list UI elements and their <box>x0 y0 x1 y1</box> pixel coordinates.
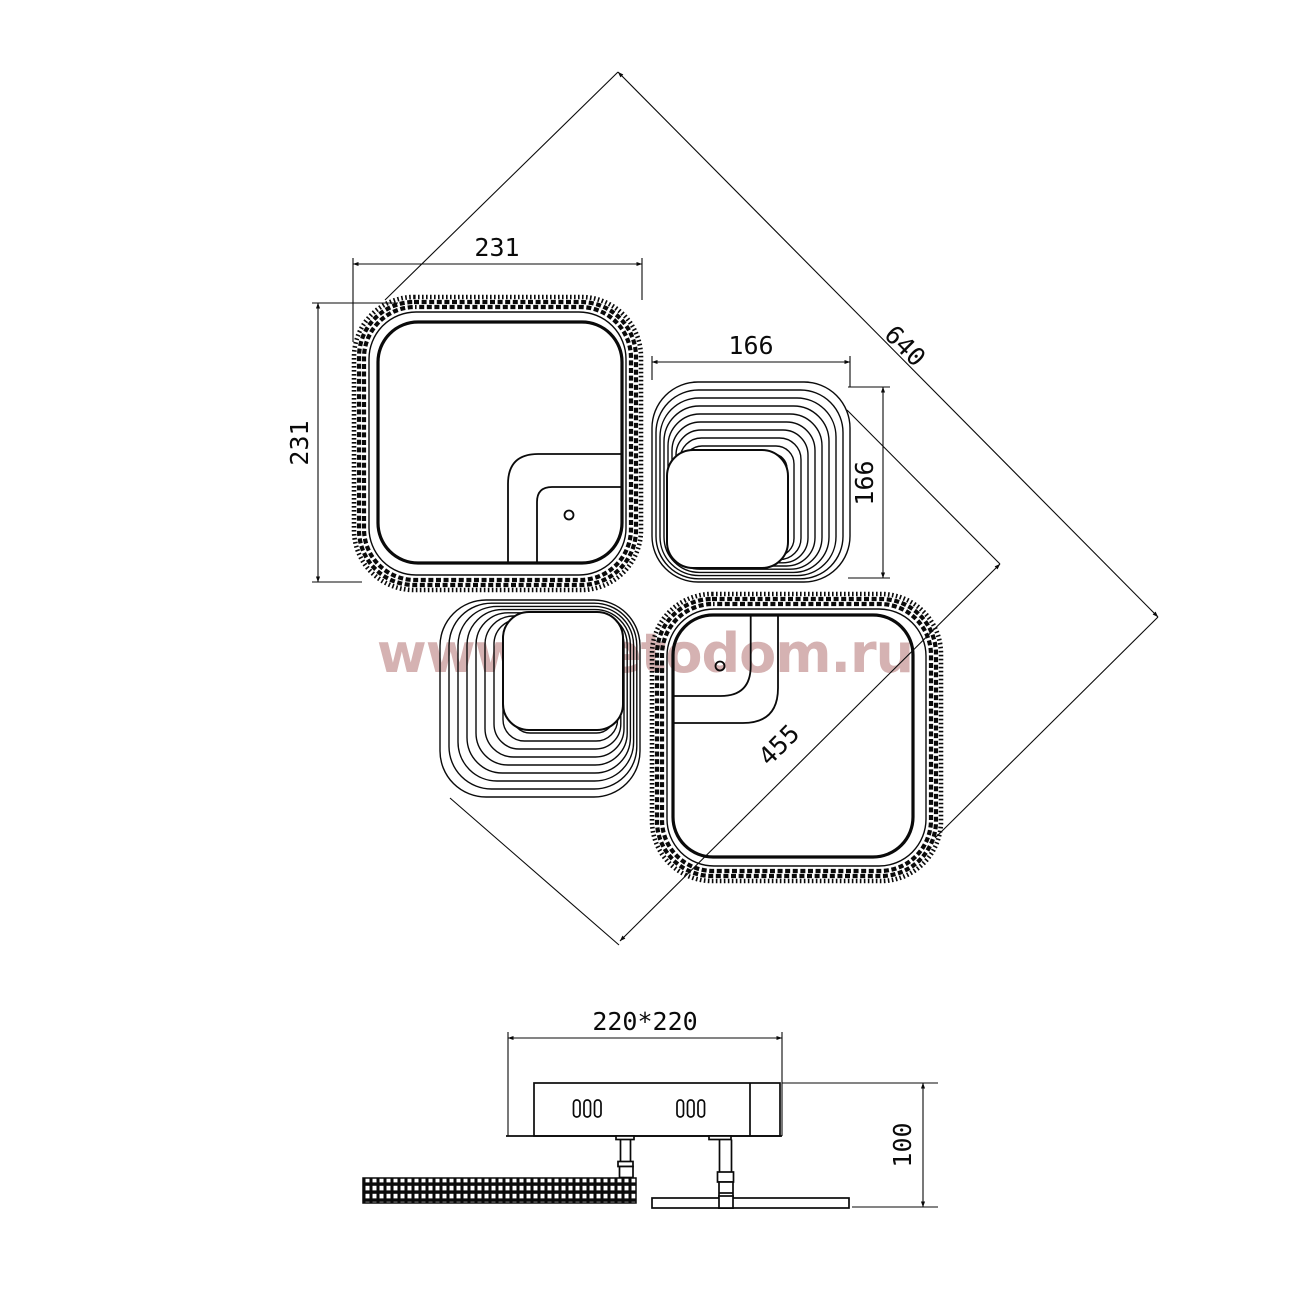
crystal-frame-side-profile <box>363 1178 636 1203</box>
dim-label-640: 640 <box>879 320 931 372</box>
stem-flange <box>709 1136 731 1140</box>
stem-connector <box>620 1167 634 1178</box>
crystal-border-band <box>364 307 631 580</box>
dimension-height-100: 100 <box>782 1083 938 1207</box>
drawing-svg: www.svetodom.ru 640 455 <box>0 0 1300 1300</box>
technical-drawing-canvas: www.svetodom.ru 640 455 <box>0 0 1300 1300</box>
side-view: 220*220 <box>363 1007 938 1208</box>
square-top-left-crystal <box>354 297 641 590</box>
mount-plate-side-profile <box>652 1198 849 1208</box>
dim-label-canopy: 220*220 <box>592 1007 697 1036</box>
square-bottom-left-rings <box>440 600 640 797</box>
dim-label-455: 455 <box>753 719 805 771</box>
light-panel-overlay <box>667 450 788 568</box>
light-panel-overlay <box>503 612 623 730</box>
canopy-box <box>506 1083 782 1136</box>
dim-label-231-top: 231 <box>474 233 519 262</box>
dimension-width-top-right: 166 <box>652 331 850 387</box>
stem-collar <box>718 1172 734 1182</box>
plan-view: 640 455 <box>285 72 1158 945</box>
crystal-border-band <box>359 302 636 585</box>
extension-line <box>935 617 1158 838</box>
square-top-right-rings <box>652 382 850 582</box>
crystal-border-inner-line <box>369 312 626 575</box>
dim-label-166-right: 166 <box>850 460 879 505</box>
stem-left <box>616 1136 634 1178</box>
dim-label-231-left: 231 <box>285 420 314 465</box>
dimension-height-top-right: 166 <box>848 387 890 578</box>
dim-label-166-top: 166 <box>728 331 773 360</box>
crystal-border-serration <box>354 297 641 590</box>
light-panel-outline <box>378 322 622 563</box>
canopy-body <box>534 1083 780 1136</box>
corner-detail <box>508 454 622 563</box>
mount-hole <box>565 511 574 520</box>
dim-label-height: 100 <box>888 1122 917 1167</box>
extension-line <box>450 798 619 945</box>
extension-line <box>385 72 618 300</box>
stem-through-plate <box>719 1196 733 1208</box>
corner-detail-line <box>508 454 622 563</box>
stem-flange <box>616 1136 634 1140</box>
